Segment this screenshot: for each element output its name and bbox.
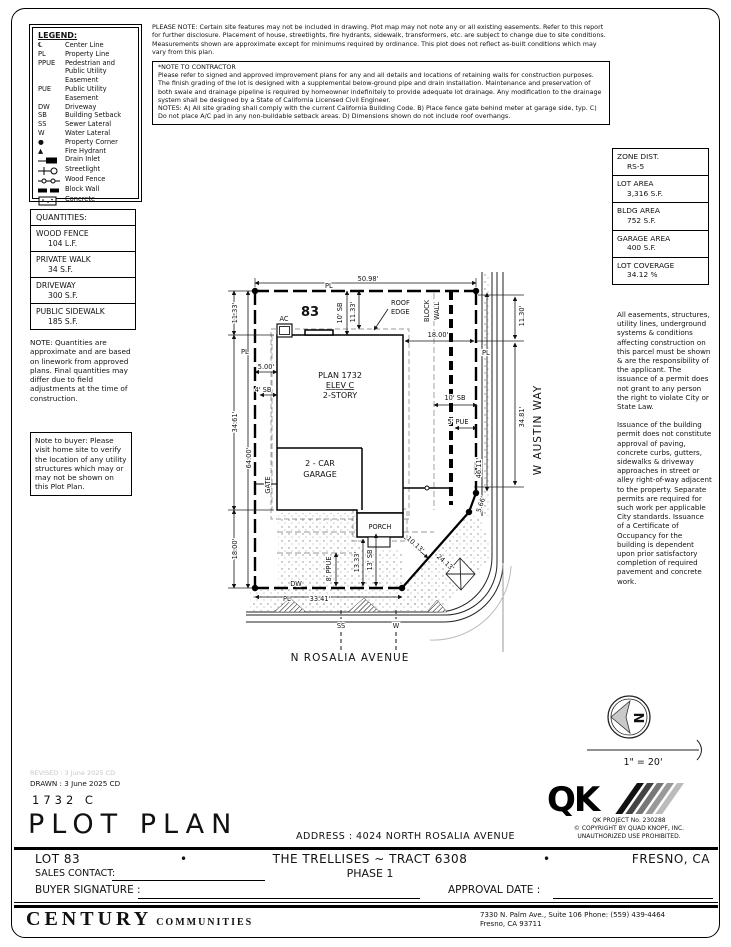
legend-row: ●Property Corner (38, 138, 136, 147)
address-line: ADDRESS : 4024 NORTH ROSALIA AVENUE (296, 831, 515, 842)
buyer-signature-label: BUYER SIGNATURE : (35, 884, 141, 896)
dim-13-33: 13.33' (353, 551, 361, 572)
plot-drawing: PL 50.98' 83 10' SB 11.33' ROOF EDGE AC … (222, 266, 566, 684)
plan-stories: 2-STORY (323, 391, 357, 400)
contractor-note-list: NOTES: A) All site grading shall comply … (158, 105, 604, 121)
builder-logo: CENTURY COMMUNITIES (26, 908, 253, 931)
qk-copyright: © COPYRIGHT BY QUAD KNOPF, INC. (545, 825, 713, 833)
dim-10sb-right: 10' SB (444, 394, 465, 402)
qk-project-number: QK PROJECT No. 230288 (545, 817, 713, 825)
table-row: BLDG AREA752 S.F. (613, 203, 708, 230)
city-disclaimer-notes: All easements, structures, utility lines… (617, 310, 712, 595)
approval-date-line (553, 898, 713, 899)
dim-4sb: 4' SB (255, 386, 272, 394)
plan-code: 1732 C (32, 793, 97, 807)
dim-11-33-left: 11.33' (231, 302, 239, 323)
street-name-austin: W AUSTIN WAY (532, 385, 544, 476)
legend-row: Concrete (38, 195, 136, 206)
divider (14, 902, 718, 903)
dim-18-00-right: 18.00' (428, 331, 449, 339)
utility-laterals (341, 610, 396, 650)
bullet: • (543, 852, 551, 866)
dim-11-33-top: 11.33' (349, 301, 357, 322)
legend-row: Streetlight (38, 165, 136, 175)
contractor-note-title: *NOTE TO CONTRACTOR (158, 64, 604, 72)
builder-name: CENTURY (26, 908, 152, 930)
plan-elevation: ELEV C (326, 381, 355, 390)
legend-row: ▲Fire Hydrant (38, 147, 136, 156)
porch-label: PORCH (369, 523, 392, 531)
plot-plan-sheet: LEGEND: ℄Center Line PLProperty Line PPU… (0, 0, 731, 947)
roof-edge-label: ROOF (391, 299, 410, 307)
centerline-symbol: ℄ (38, 41, 63, 50)
legend-row: PUEPublic Utility Easement (38, 85, 136, 103)
table-row: PUBLIC SIDEWALK185 S.F. (31, 304, 135, 329)
streetlight-icon (38, 165, 63, 175)
wood-fence-icon (38, 175, 63, 185)
legend-title: LEGEND: (38, 31, 136, 40)
table-row: PRIVATE WALK34 S.F. (31, 252, 135, 278)
north-arrow-icon: N (608, 696, 650, 738)
approval-date-label: APPROVAL DATE : (448, 884, 540, 896)
bullet: • (180, 852, 188, 866)
table-row: LOT COVERAGE34.12 % (613, 258, 708, 284)
sewer-lateral-label: SS (337, 622, 345, 630)
please-note-text: PLEASE NOTE: Certain site features may n… (152, 24, 610, 57)
disclaimer-paragraph: All easements, structures, utility lines… (617, 310, 712, 411)
dim-34-81: 34.81' (518, 406, 526, 427)
sales-contact-label: SALES CONTACT: (35, 868, 115, 879)
sales-contact-line (112, 880, 265, 881)
contractor-note-body: Please refer to signed and approved impr… (158, 72, 604, 105)
tract-label: THE TRELLISES ~ TRACT 6308 (230, 852, 510, 866)
pl-label-right: PL (482, 349, 490, 357)
drawn-line: DRAWN : 3 June 2025 CD (30, 779, 120, 788)
dim-8ppue: 8' PPUE (325, 556, 333, 581)
legend-row: Drain Inlet (38, 155, 136, 165)
quantities-note: NOTE: Quantities are approximate and are… (30, 338, 134, 403)
svg-text:QK: QK (547, 781, 602, 817)
pl-label-bottom: PL (283, 595, 291, 603)
legend-row: Block Wall (38, 185, 136, 195)
garage-label: 2 - CAR (305, 459, 335, 468)
pl-label-left: PL (241, 348, 249, 356)
dim-34-61: 34.61' (231, 411, 239, 432)
north-arrow-and-scale: N 1" = 20' (585, 688, 715, 773)
table-row: LOT AREA3,316 S.F. (613, 176, 708, 203)
revised-line: REVISED : 3 June 2025 CD (30, 769, 115, 777)
builder-address: 7330 N. Palm Ave., Suite 106 Phone: (559… (480, 911, 712, 929)
legend-row: PLProperty Line (38, 50, 136, 59)
buyer-signature-line (138, 898, 420, 899)
lot-label: LOT 83 (35, 852, 80, 866)
plan-name: PLAN 1732 (318, 371, 362, 380)
dim-18-00-left: 18.00' (231, 538, 239, 559)
buyer-note-box: Note to buyer: Please visit home site to… (30, 432, 132, 496)
zoning-table: ZONE DIST.RS-5 LOT AREA3,316 S.F. BLDG A… (612, 148, 709, 285)
legend-row: SBBuilding Setback (38, 111, 136, 120)
qk-logo-stripes (615, 783, 684, 814)
concrete-icon (38, 195, 63, 206)
phase-label: PHASE 1 (300, 867, 440, 880)
fire-hydrant-icon: ▲ (38, 147, 63, 156)
dim-5-00: 5.00' (258, 363, 275, 371)
sheet-title: PLOT PLAN (28, 809, 238, 840)
lot-number: 83 (301, 305, 319, 320)
dim-13sb: 13' SB (366, 549, 374, 570)
roof-edge-label: EDGE (391, 308, 410, 316)
ac-label: AC (280, 315, 289, 323)
property-corner-icon: ● (38, 138, 63, 147)
dim-10-13: 10.13' (405, 535, 426, 555)
garage-label: GARAGE (303, 470, 337, 479)
drain-inlet-icon (38, 155, 63, 165)
qk-unauthorized: UNAUTHORIZED USE PROHIBITED. (545, 833, 713, 841)
block-wall-icon (38, 185, 63, 195)
block-wall-label: WALL (433, 302, 441, 320)
dim-5pue: 5' PUE (447, 418, 468, 426)
dim-10sb-top: 10' SB (336, 302, 344, 323)
street-name-rosalia: N ROSALIA AVENUE (291, 652, 410, 664)
disclaimer-paragraph: Issuance of the building permit does not… (617, 420, 712, 586)
qk-credits: QK PROJECT No. 230288 © COPYRIGHT BY QUA… (545, 817, 713, 842)
legend-row: WWater Lateral (38, 129, 136, 138)
property-line-symbol: PL (38, 50, 63, 59)
divider (14, 847, 718, 850)
note-to-contractor-box: *NOTE TO CONTRACTOR Please refer to sign… (152, 61, 610, 125)
legend-row: PPUEPedestrian and Public Utility Easeme… (38, 59, 136, 85)
quantities-title: QUANTITIES: (31, 210, 135, 226)
gate-label: GATE (264, 476, 272, 493)
dim-64-00: 64.00' (245, 447, 253, 468)
table-row: DRIVEWAY300 S.F. (31, 278, 135, 304)
dim-11-30: 11.30' (518, 305, 526, 326)
table-row: ZONE DIST.RS-5 (613, 149, 708, 176)
block-wall-label: BLOCK (423, 299, 431, 322)
dim-33-41: 33.41' (310, 595, 331, 603)
pl-label-top: PL (325, 282, 333, 290)
dim-46-11: 46.11' (475, 457, 483, 478)
table-row: WOOD FENCE104 L.F. (31, 226, 135, 252)
legend-row: DWDriveway (38, 103, 136, 112)
dim-50-98: 50.98' (358, 275, 379, 283)
builder-name-suffix: COMMUNITIES (156, 917, 253, 928)
table-row: GARAGE AREA400 S.F. (613, 231, 708, 258)
qk-logo: QK (545, 781, 715, 817)
quantities-table: QUANTITIES: WOOD FENCE104 L.F. PRIVATE W… (30, 209, 136, 330)
legend-row: SSSewer Lateral (38, 120, 136, 129)
svg-text:N: N (630, 713, 645, 724)
legend-box: LEGEND: ℄Center Line PLProperty Line PPU… (32, 27, 139, 199)
city-label: FRESNO, CA (600, 852, 710, 866)
water-lateral-label: W (393, 622, 400, 630)
driveway-label: DW (290, 580, 302, 588)
scale-text: 1" = 20' (623, 757, 662, 768)
legend-row: Wood Fence (38, 175, 136, 185)
legend-row: ℄Center Line (38, 41, 136, 50)
